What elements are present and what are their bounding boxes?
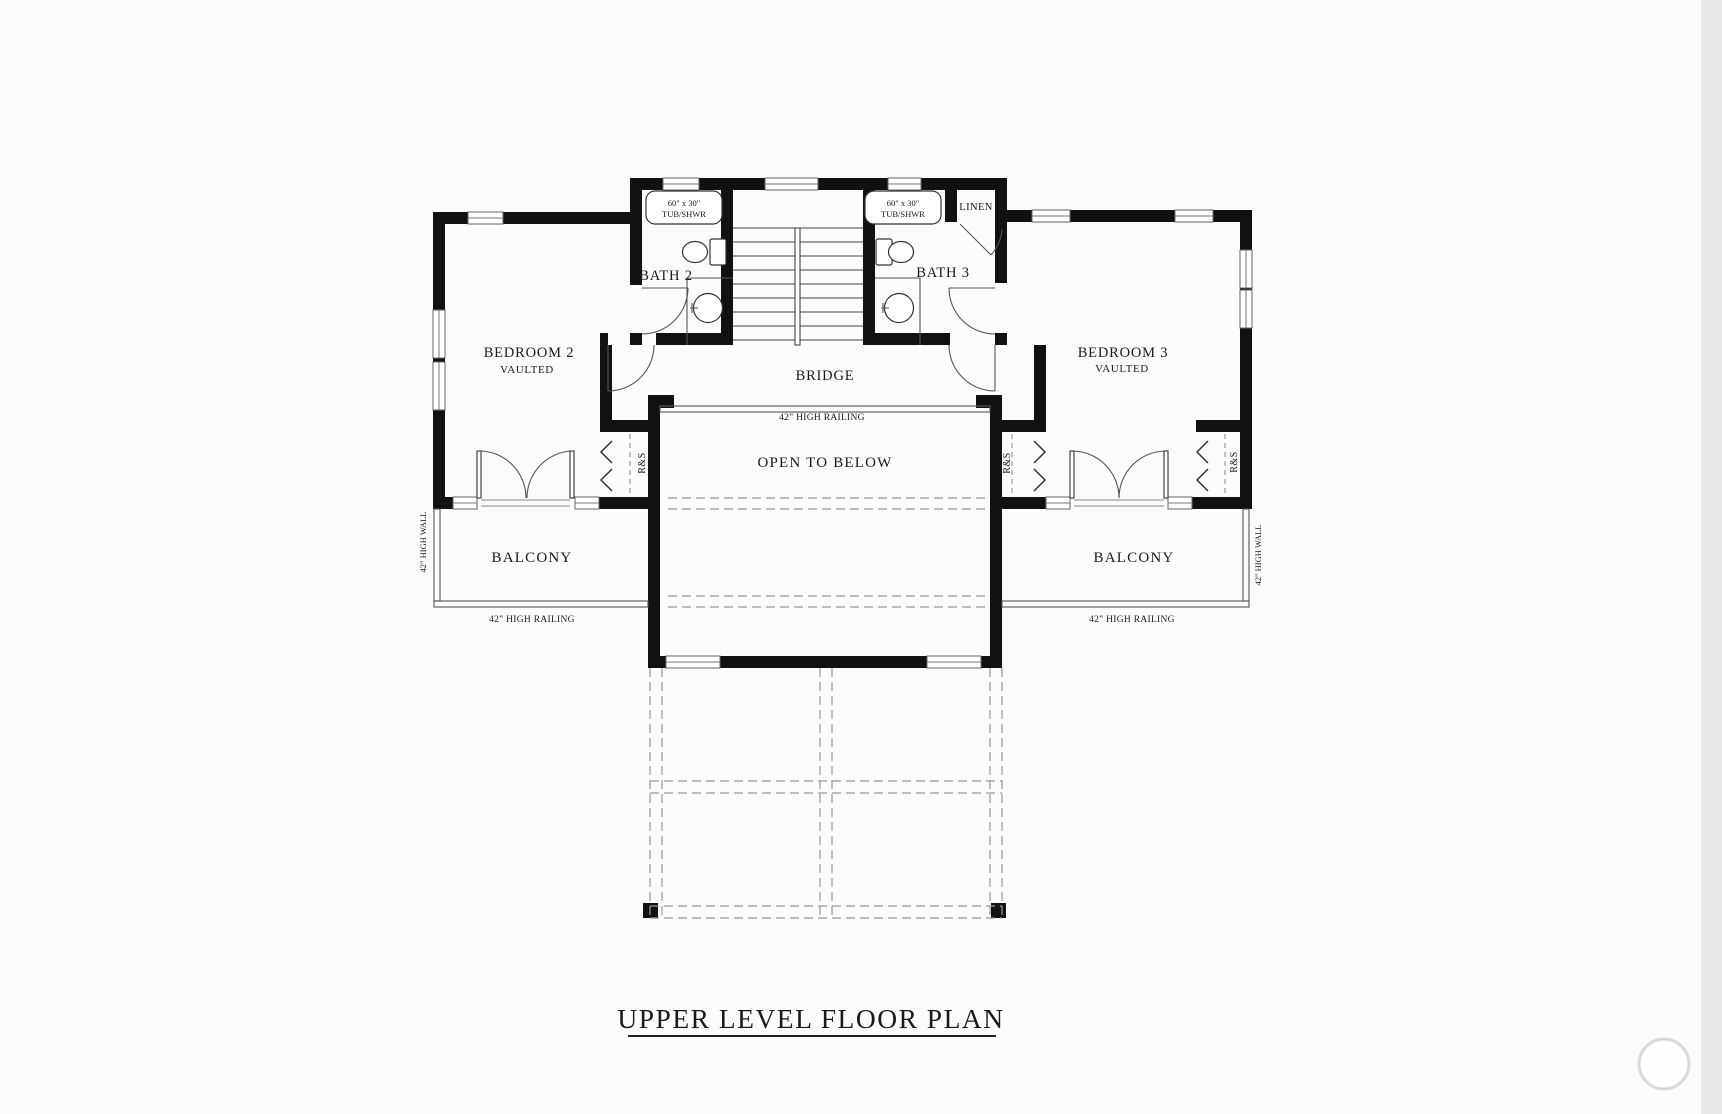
wall-segment	[600, 333, 608, 345]
tub2-size-label: 60" x 30"	[668, 198, 700, 208]
window-icon	[1168, 497, 1192, 509]
toilet-icon	[876, 239, 914, 265]
window-icon	[927, 656, 981, 668]
labels: BATH 2 BATH 3 LINEN 60" x 30" TUB/SHWR 6…	[418, 198, 1263, 1034]
bedroom3-label: BEDROOM 3	[1078, 345, 1169, 361]
left-balcony-label: BALCONY	[492, 550, 573, 566]
bath2-label: BATH 2	[639, 268, 693, 284]
open-to-below-label: OPEN TO BELOW	[757, 455, 892, 471]
wall-segment	[981, 656, 1002, 668]
right-balcony-railing-label: 42" HIGH RAILING	[1089, 615, 1175, 625]
floor-plan-sheet: BATH 2 BATH 3 LINEN 60" x 30" TUB/SHWR 6…	[0, 0, 1722, 1114]
wall-segment	[990, 395, 1002, 668]
wall-segment	[1192, 497, 1240, 509]
wall-segment	[600, 345, 612, 432]
left-balcony-railing	[434, 601, 648, 607]
bedroom3-note: VAULTED	[1095, 363, 1149, 375]
window-icon	[1032, 210, 1070, 222]
french-door-icon	[1070, 451, 1168, 506]
wall-segment	[995, 333, 1007, 345]
right-balcony-side-wall	[1243, 509, 1249, 601]
window-icon	[663, 178, 699, 190]
wall-segment	[433, 497, 453, 509]
bifold-door-icon	[1034, 441, 1045, 491]
tub3-type-label: TUB/SHWR	[881, 209, 925, 219]
wall-segment	[599, 497, 648, 509]
window-icon	[1046, 497, 1070, 509]
door-swing-icon	[608, 345, 654, 391]
stairs-icon	[733, 228, 863, 345]
page-title: UPPER LEVEL FLOOR PLAN	[617, 1003, 1004, 1034]
left-balcony-side-wall	[434, 509, 440, 601]
right-high-wall-label: 42" HIGH WALL	[1253, 525, 1263, 586]
wall-segment	[433, 212, 445, 509]
right-balcony-label: BALCONY	[1094, 550, 1175, 566]
wall-segment	[863, 333, 950, 345]
tub3-size-label: 60" x 30"	[887, 198, 919, 208]
window-icon	[468, 212, 503, 224]
window-icon	[433, 310, 445, 358]
wall-segment	[433, 212, 630, 224]
window-icon	[1240, 250, 1252, 288]
wall-segment	[1196, 420, 1240, 432]
door-swing-icon	[642, 288, 688, 334]
wall-segment	[1002, 497, 1046, 509]
page-edge-strip	[1701, 0, 1722, 1114]
bridge-railing	[660, 406, 990, 412]
wall-segment	[630, 333, 642, 345]
right-balcony-railing	[1002, 601, 1249, 607]
window-icon	[888, 178, 921, 190]
wall-segment	[720, 656, 927, 668]
closet-rs-label: R&S	[1002, 452, 1013, 474]
window-icon	[433, 362, 445, 410]
wall-segment	[600, 420, 648, 432]
linen-label: LINEN	[959, 202, 993, 213]
window-icon	[453, 497, 477, 509]
window-icon	[765, 178, 818, 190]
bridge-railing-label: 42" HIGH RAILING	[779, 413, 865, 423]
window-icon	[666, 656, 720, 668]
closet-rod-lines	[630, 434, 1225, 495]
bridge-label: BRIDGE	[796, 368, 855, 384]
closet-rs-label: R&S	[1229, 451, 1240, 473]
tub2-type-label: TUB/SHWR	[662, 209, 706, 219]
left-high-wall-label: 42" HIGH WALL	[418, 512, 428, 573]
wall-segment	[990, 420, 1046, 432]
bifold-door-icon	[601, 441, 612, 491]
floor-plan-drawing: BATH 2 BATH 3 LINEN 60" x 30" TUB/SHWR 6…	[0, 0, 1722, 1114]
bath3-label: BATH 3	[916, 265, 970, 281]
bedroom2-note: VAULTED	[500, 364, 554, 376]
wall-segment	[945, 190, 957, 222]
window-icon	[575, 497, 599, 509]
wall-segment	[656, 333, 733, 345]
wall-segment	[1034, 345, 1046, 432]
bedroom2-label: BEDROOM 2	[484, 345, 575, 361]
post	[991, 903, 1006, 918]
door-swing-icon	[949, 288, 995, 334]
wall-segment	[648, 656, 666, 668]
wall-segment	[648, 395, 660, 668]
toilet-icon	[683, 239, 727, 265]
window-icon	[1175, 210, 1213, 222]
left-balcony-railing-label: 42" HIGH RAILING	[489, 615, 575, 625]
bifold-door-icon	[1197, 441, 1208, 491]
lower-level-dashed-outline	[650, 498, 1002, 918]
door-swing-icon	[949, 345, 995, 391]
windows	[433, 178, 1252, 668]
closet-rs-label: R&S	[637, 452, 648, 474]
window-icon	[1240, 290, 1252, 328]
french-door-icon	[477, 451, 574, 506]
walls	[433, 178, 1252, 918]
watermark-icon	[1639, 1039, 1689, 1089]
